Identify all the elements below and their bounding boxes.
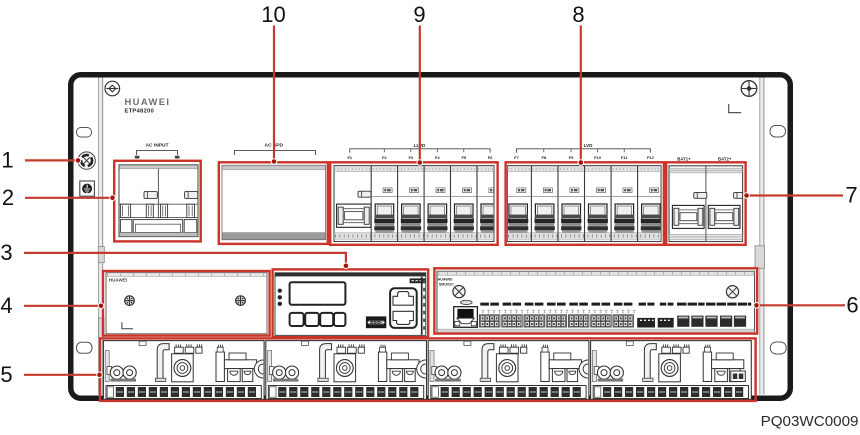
- svg-text:BAT2+: BAT2+: [718, 157, 732, 162]
- svg-text:F8: F8: [541, 155, 546, 160]
- svg-text:AC INPUT: AC INPUT: [145, 142, 168, 148]
- svg-text:F3: F3: [408, 155, 413, 160]
- svg-text:6: 6: [846, 292, 858, 317]
- svg-text:PQ03WC0009: PQ03WC0009: [761, 413, 859, 430]
- svg-text:1: 1: [1, 147, 13, 172]
- svg-text:F11: F11: [621, 155, 628, 160]
- svg-text:3: 3: [0, 240, 12, 265]
- svg-text:LVD: LVD: [584, 143, 594, 148]
- svg-text:9: 9: [413, 2, 425, 27]
- svg-text:HUAWEI: HUAWEI: [125, 96, 171, 107]
- svg-text:4: 4: [0, 293, 12, 318]
- svg-text:10: 10: [261, 2, 285, 27]
- svg-text:F4: F4: [435, 155, 440, 160]
- svg-text:2: 2: [2, 185, 14, 210]
- svg-text:F6: F6: [488, 155, 493, 160]
- svg-text:HUAWEI: HUAWEI: [109, 277, 127, 282]
- svg-text:F5: F5: [461, 155, 466, 160]
- svg-text:SMU02C: SMU02C: [439, 283, 454, 287]
- svg-text:F7: F7: [514, 155, 519, 160]
- svg-text:BAT1+: BAT1+: [677, 157, 691, 162]
- svg-text:F1: F1: [347, 155, 352, 160]
- svg-text:HUAWEI: HUAWEI: [438, 277, 453, 281]
- svg-text:5: 5: [0, 362, 12, 387]
- svg-text:F10: F10: [594, 155, 602, 160]
- svg-text:8: 8: [572, 2, 584, 27]
- svg-text:ETP48200: ETP48200: [125, 108, 155, 114]
- svg-text:F9: F9: [569, 155, 574, 160]
- svg-text:7: 7: [845, 183, 857, 208]
- svg-text:F2: F2: [382, 155, 387, 160]
- svg-text:F12: F12: [647, 155, 655, 160]
